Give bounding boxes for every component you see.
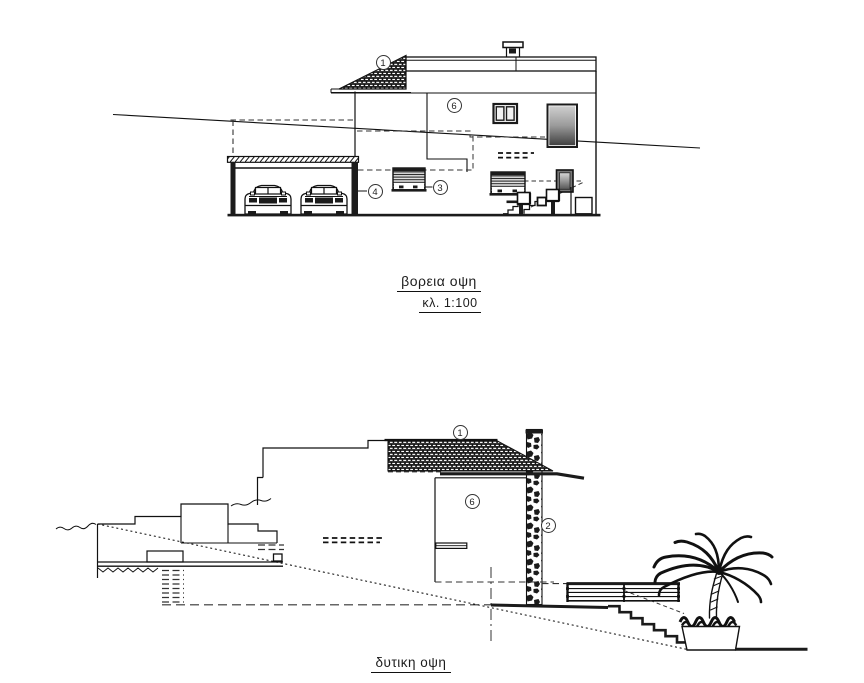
north-elevation-caption: βορεια οψη [397, 273, 481, 292]
west-elevation-drawing [56, 430, 808, 651]
callout-north-1: 1 [376, 55, 391, 70]
callout-north-6: 6 [447, 98, 462, 113]
drawing-sheet: βορεια οψη κλ. 1:100 δυτικη οψη 1634162 [0, 0, 864, 683]
north-elevation-scale-label: κλ. 1:100 [419, 296, 481, 313]
callout-north-3: 3 [433, 180, 448, 195]
callout-north-4: 4 [368, 184, 383, 199]
roller-shutter-window [392, 168, 427, 192]
elevation-linework [0, 0, 864, 683]
planter [680, 618, 740, 651]
callout-west-1: 1 [453, 425, 468, 440]
car-front-view [301, 186, 347, 215]
double-casement-window [494, 104, 518, 123]
fence [566, 583, 680, 602]
callout-west-2: 2 [541, 518, 556, 533]
west-elevation-caption: δυτικη οψη [371, 655, 451, 673]
north-elevation-drawing [113, 42, 700, 216]
callout-west-6: 6 [465, 494, 480, 509]
car-front-view [245, 186, 291, 215]
large-window [547, 104, 579, 149]
palm-tree [654, 534, 772, 618]
